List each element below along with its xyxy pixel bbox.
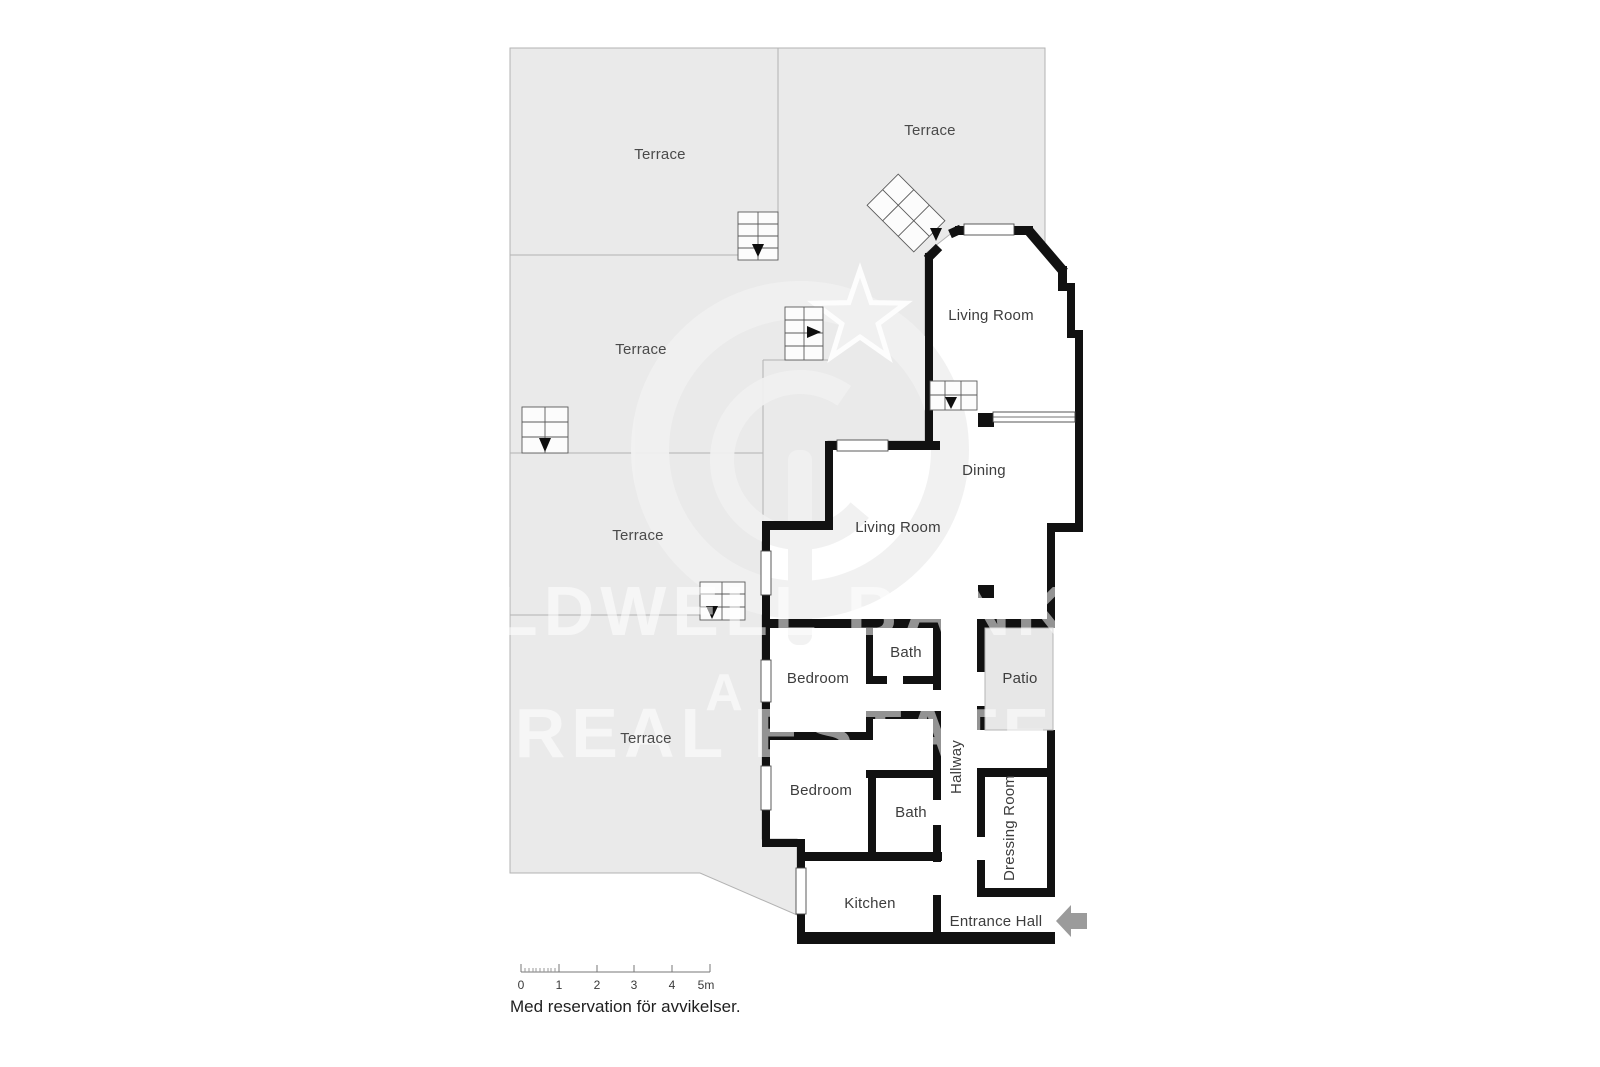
scale-bar bbox=[521, 964, 710, 972]
entrance-arrow-icon bbox=[1056, 905, 1087, 937]
floor-plan: COLDWELL BANKER A REAL ESTATE Terrace Te… bbox=[0, 0, 1600, 1067]
terrace-label-3: Terrace bbox=[615, 341, 666, 358]
disclaimer-text: Med reservation för avvikelser. bbox=[510, 997, 741, 1016]
bath-2-label: Bath bbox=[895, 804, 927, 821]
scale-tick-4: 4 bbox=[669, 978, 676, 992]
hallway-label: Hallway bbox=[948, 740, 965, 794]
terrace-label-2: Terrace bbox=[904, 122, 955, 139]
scale-bar-labels: 0 1 2 3 4 5m bbox=[518, 978, 715, 992]
kitchen-label: Kitchen bbox=[844, 895, 895, 912]
stairs-terrace-2 bbox=[785, 307, 823, 360]
living-room-lower-label: Living Room bbox=[855, 519, 941, 536]
window bbox=[837, 440, 888, 451]
terrace-label-5: Terrace bbox=[620, 730, 671, 747]
watermark-line-3: REAL ESTATE bbox=[515, 694, 1055, 772]
bath-1-label: Bath bbox=[890, 644, 922, 661]
dressing-room-label: Dressing Room bbox=[1001, 775, 1018, 881]
stairs-living-room bbox=[930, 381, 977, 410]
terrace-label-1: Terrace bbox=[634, 146, 685, 163]
terrace-label-4: Terrace bbox=[612, 527, 663, 544]
patio-label: Patio bbox=[1002, 670, 1037, 687]
window bbox=[964, 224, 1014, 235]
scale-tick-5: 5m bbox=[698, 978, 715, 992]
watermark-text: COLDWELL BANKER A REAL ESTATE bbox=[378, 572, 1182, 772]
window bbox=[761, 766, 771, 810]
bedroom-1-label: Bedroom bbox=[787, 670, 849, 687]
scale-tick-2: 2 bbox=[594, 978, 601, 992]
scale-tick-3: 3 bbox=[631, 978, 638, 992]
watermark-line-1: COLDWELL BANKER bbox=[378, 572, 1182, 650]
stairs-terrace-1 bbox=[738, 212, 778, 260]
living-room-upper-label: Living Room bbox=[948, 307, 1034, 324]
entrance-hall-label: Entrance Hall bbox=[950, 913, 1043, 930]
pillar bbox=[978, 413, 994, 427]
window bbox=[796, 868, 806, 914]
dining-window-band bbox=[993, 412, 1075, 422]
scale-tick-1: 1 bbox=[556, 978, 563, 992]
bedroom-2-label: Bedroom bbox=[790, 782, 852, 799]
stairs-terrace-3 bbox=[522, 407, 568, 453]
scale-tick-0: 0 bbox=[518, 978, 525, 992]
dining-label: Dining bbox=[962, 462, 1006, 479]
